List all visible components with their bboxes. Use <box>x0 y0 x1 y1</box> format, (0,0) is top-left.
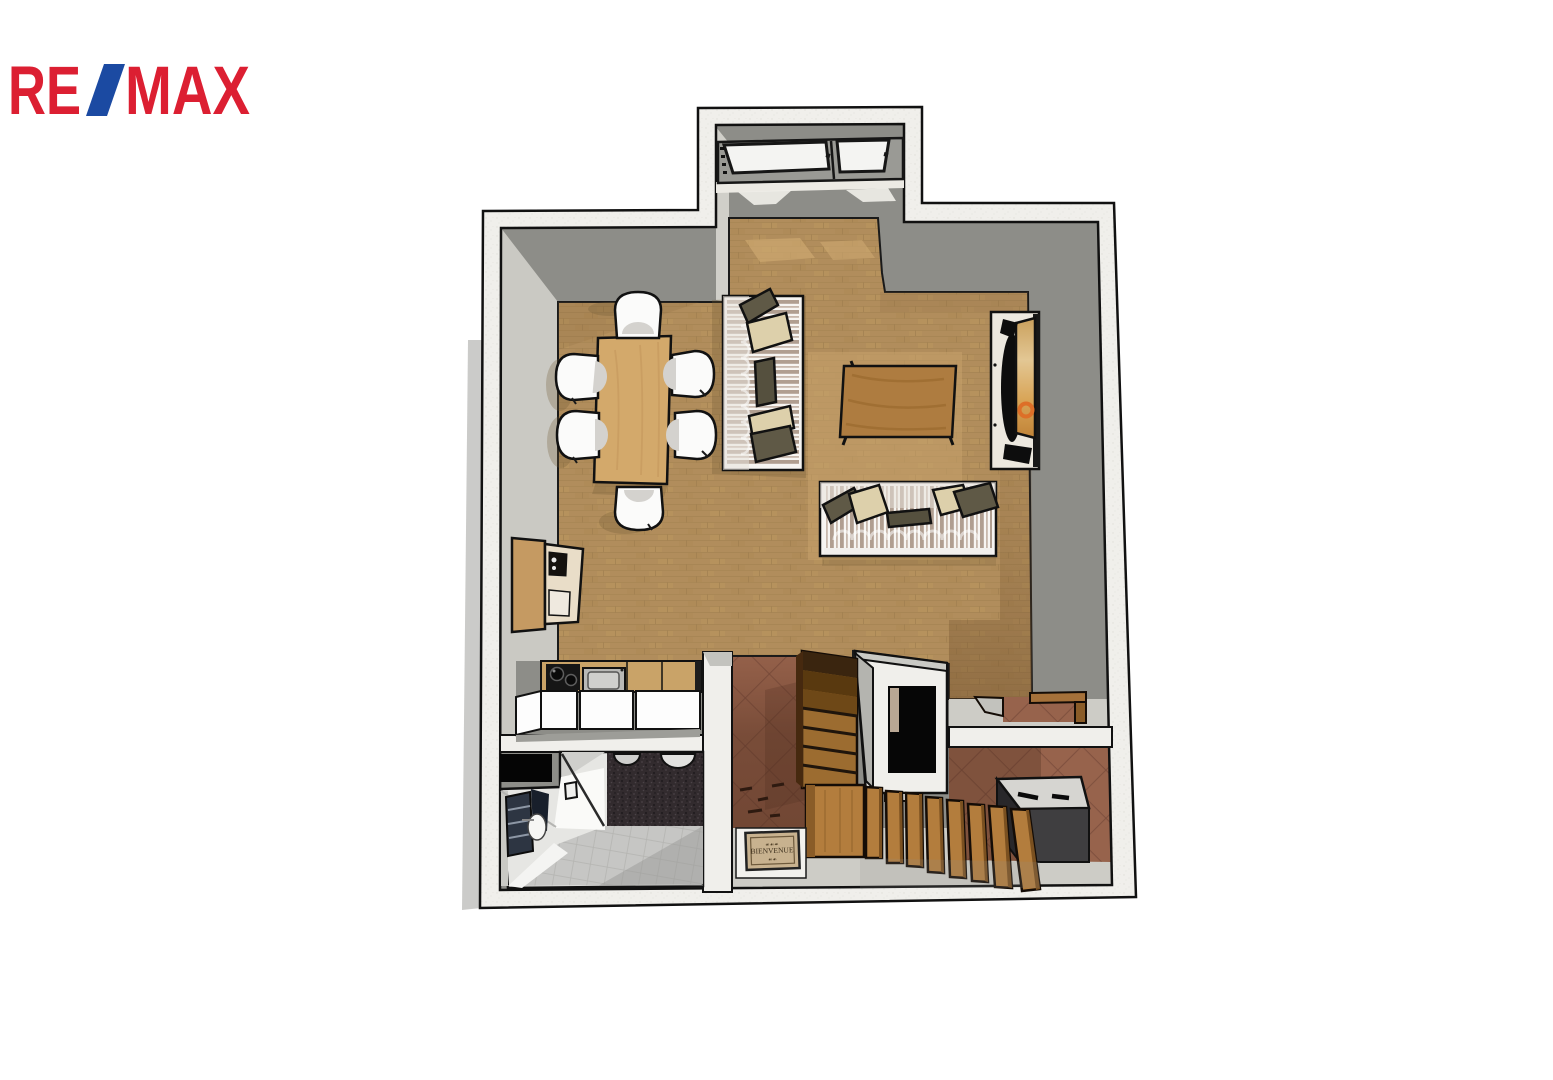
svg-text:☙☙: ☙☙ <box>768 858 778 863</box>
svg-text:RE: RE <box>8 52 81 129</box>
svg-text:MAX: MAX <box>125 52 250 129</box>
svg-text:☙☙☙: ☙☙☙ <box>765 843 779 848</box>
